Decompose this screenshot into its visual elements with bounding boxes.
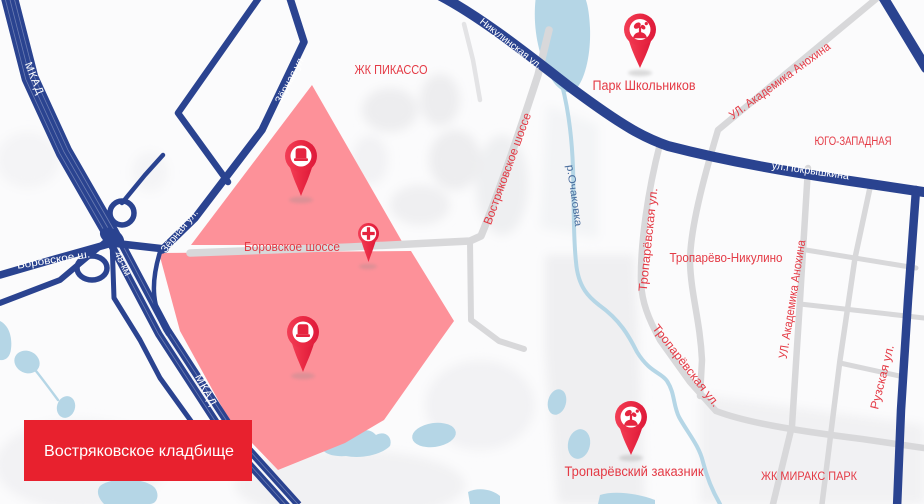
svg-text:ЖК МИРАКС ПАРК: ЖК МИРАКС ПАРК bbox=[761, 469, 857, 483]
svg-text:Парк Школьников: Парк Школьников bbox=[593, 78, 696, 93]
svg-text:Тропарёвский заказник: Тропарёвский заказник bbox=[565, 464, 704, 479]
svg-text:ЮГО-ЗАПАДНАЯ: ЮГО-ЗАПАДНАЯ bbox=[815, 136, 892, 148]
svg-text:Востряковское кладбище: Востряковское кладбище bbox=[44, 443, 234, 460]
svg-text:Боровское шоссе: Боровское шоссе bbox=[244, 240, 340, 254]
svg-text:Тропарёво-Никулино: Тропарёво-Никулино bbox=[670, 251, 783, 265]
svg-text:ЖК ПИКАССО: ЖК ПИКАССО bbox=[355, 62, 428, 77]
